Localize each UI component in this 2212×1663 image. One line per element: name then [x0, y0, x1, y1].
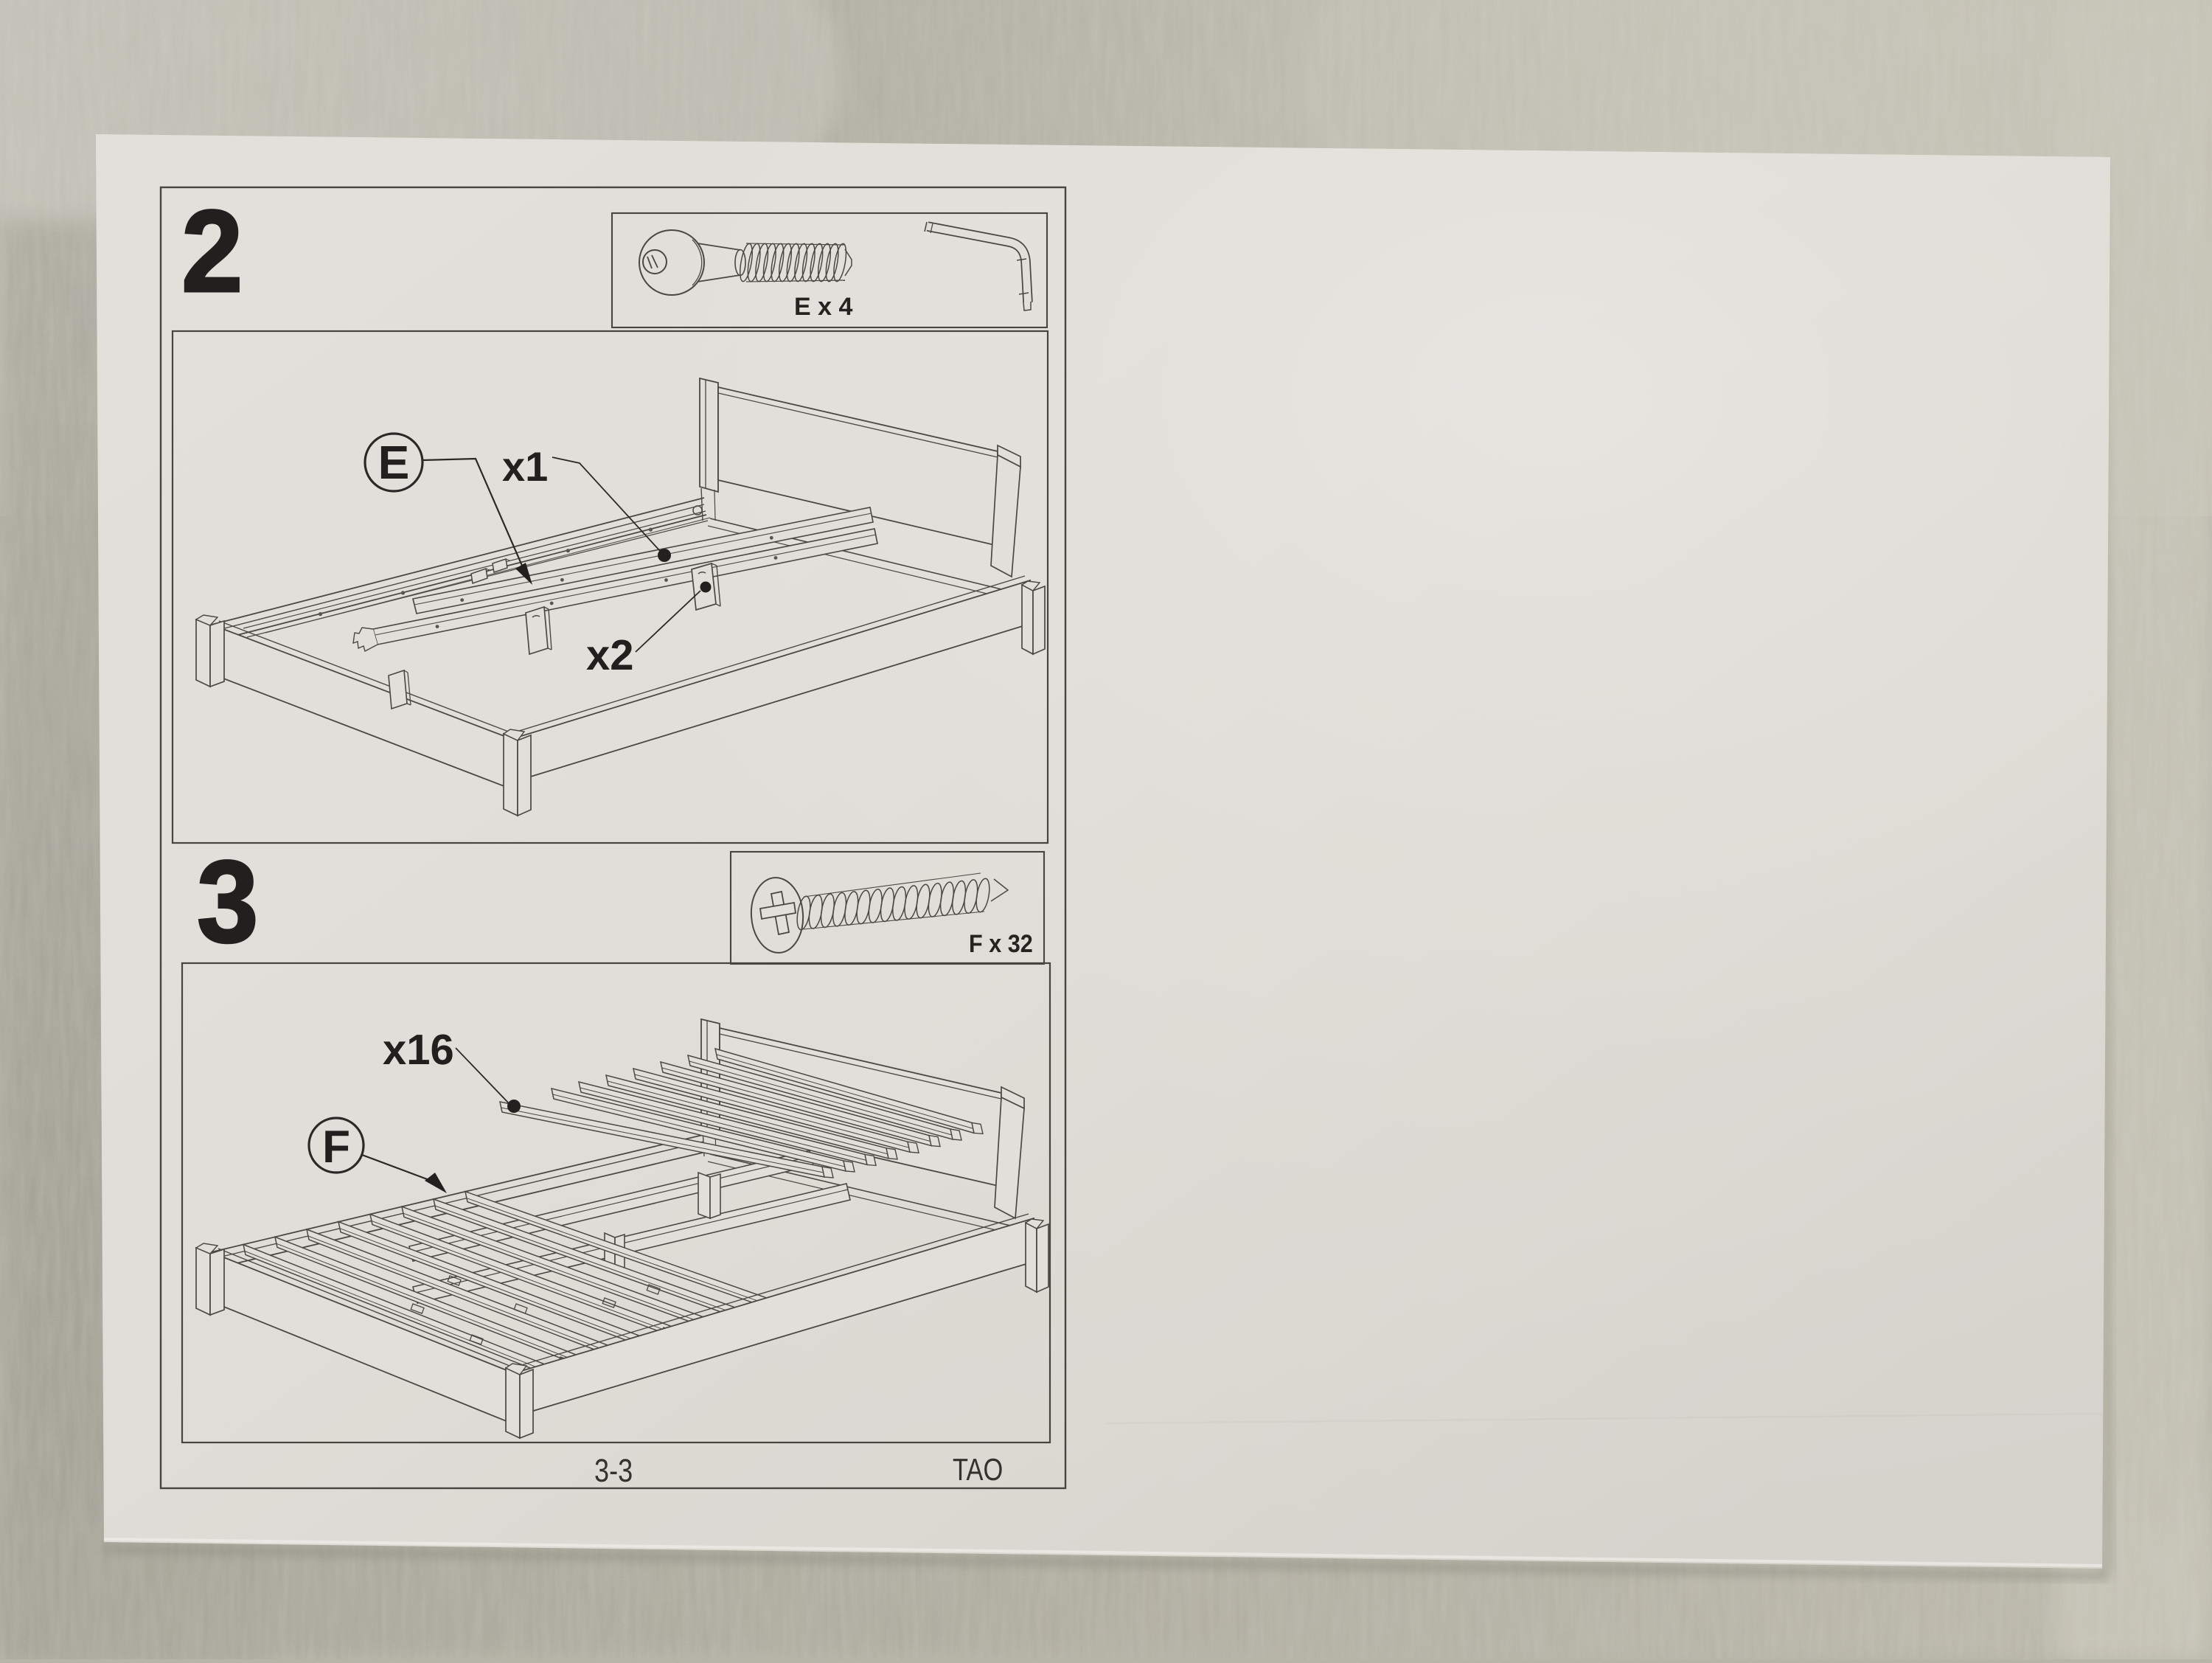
- svg-text:F x 32: F x 32: [969, 930, 1033, 958]
- svg-text:E: E: [378, 436, 410, 489]
- svg-text:3-3: 3-3: [594, 1453, 633, 1489]
- svg-text:F: F: [322, 1122, 350, 1173]
- svg-text:E x 4: E x 4: [794, 293, 852, 321]
- svg-text:x2: x2: [586, 631, 634, 679]
- svg-text:x1: x1: [502, 443, 548, 490]
- svg-text:2: 2: [181, 187, 243, 316]
- svg-text:3: 3: [197, 837, 258, 967]
- svg-text:x16: x16: [383, 1026, 454, 1074]
- svg-text:TAO: TAO: [953, 1452, 1003, 1487]
